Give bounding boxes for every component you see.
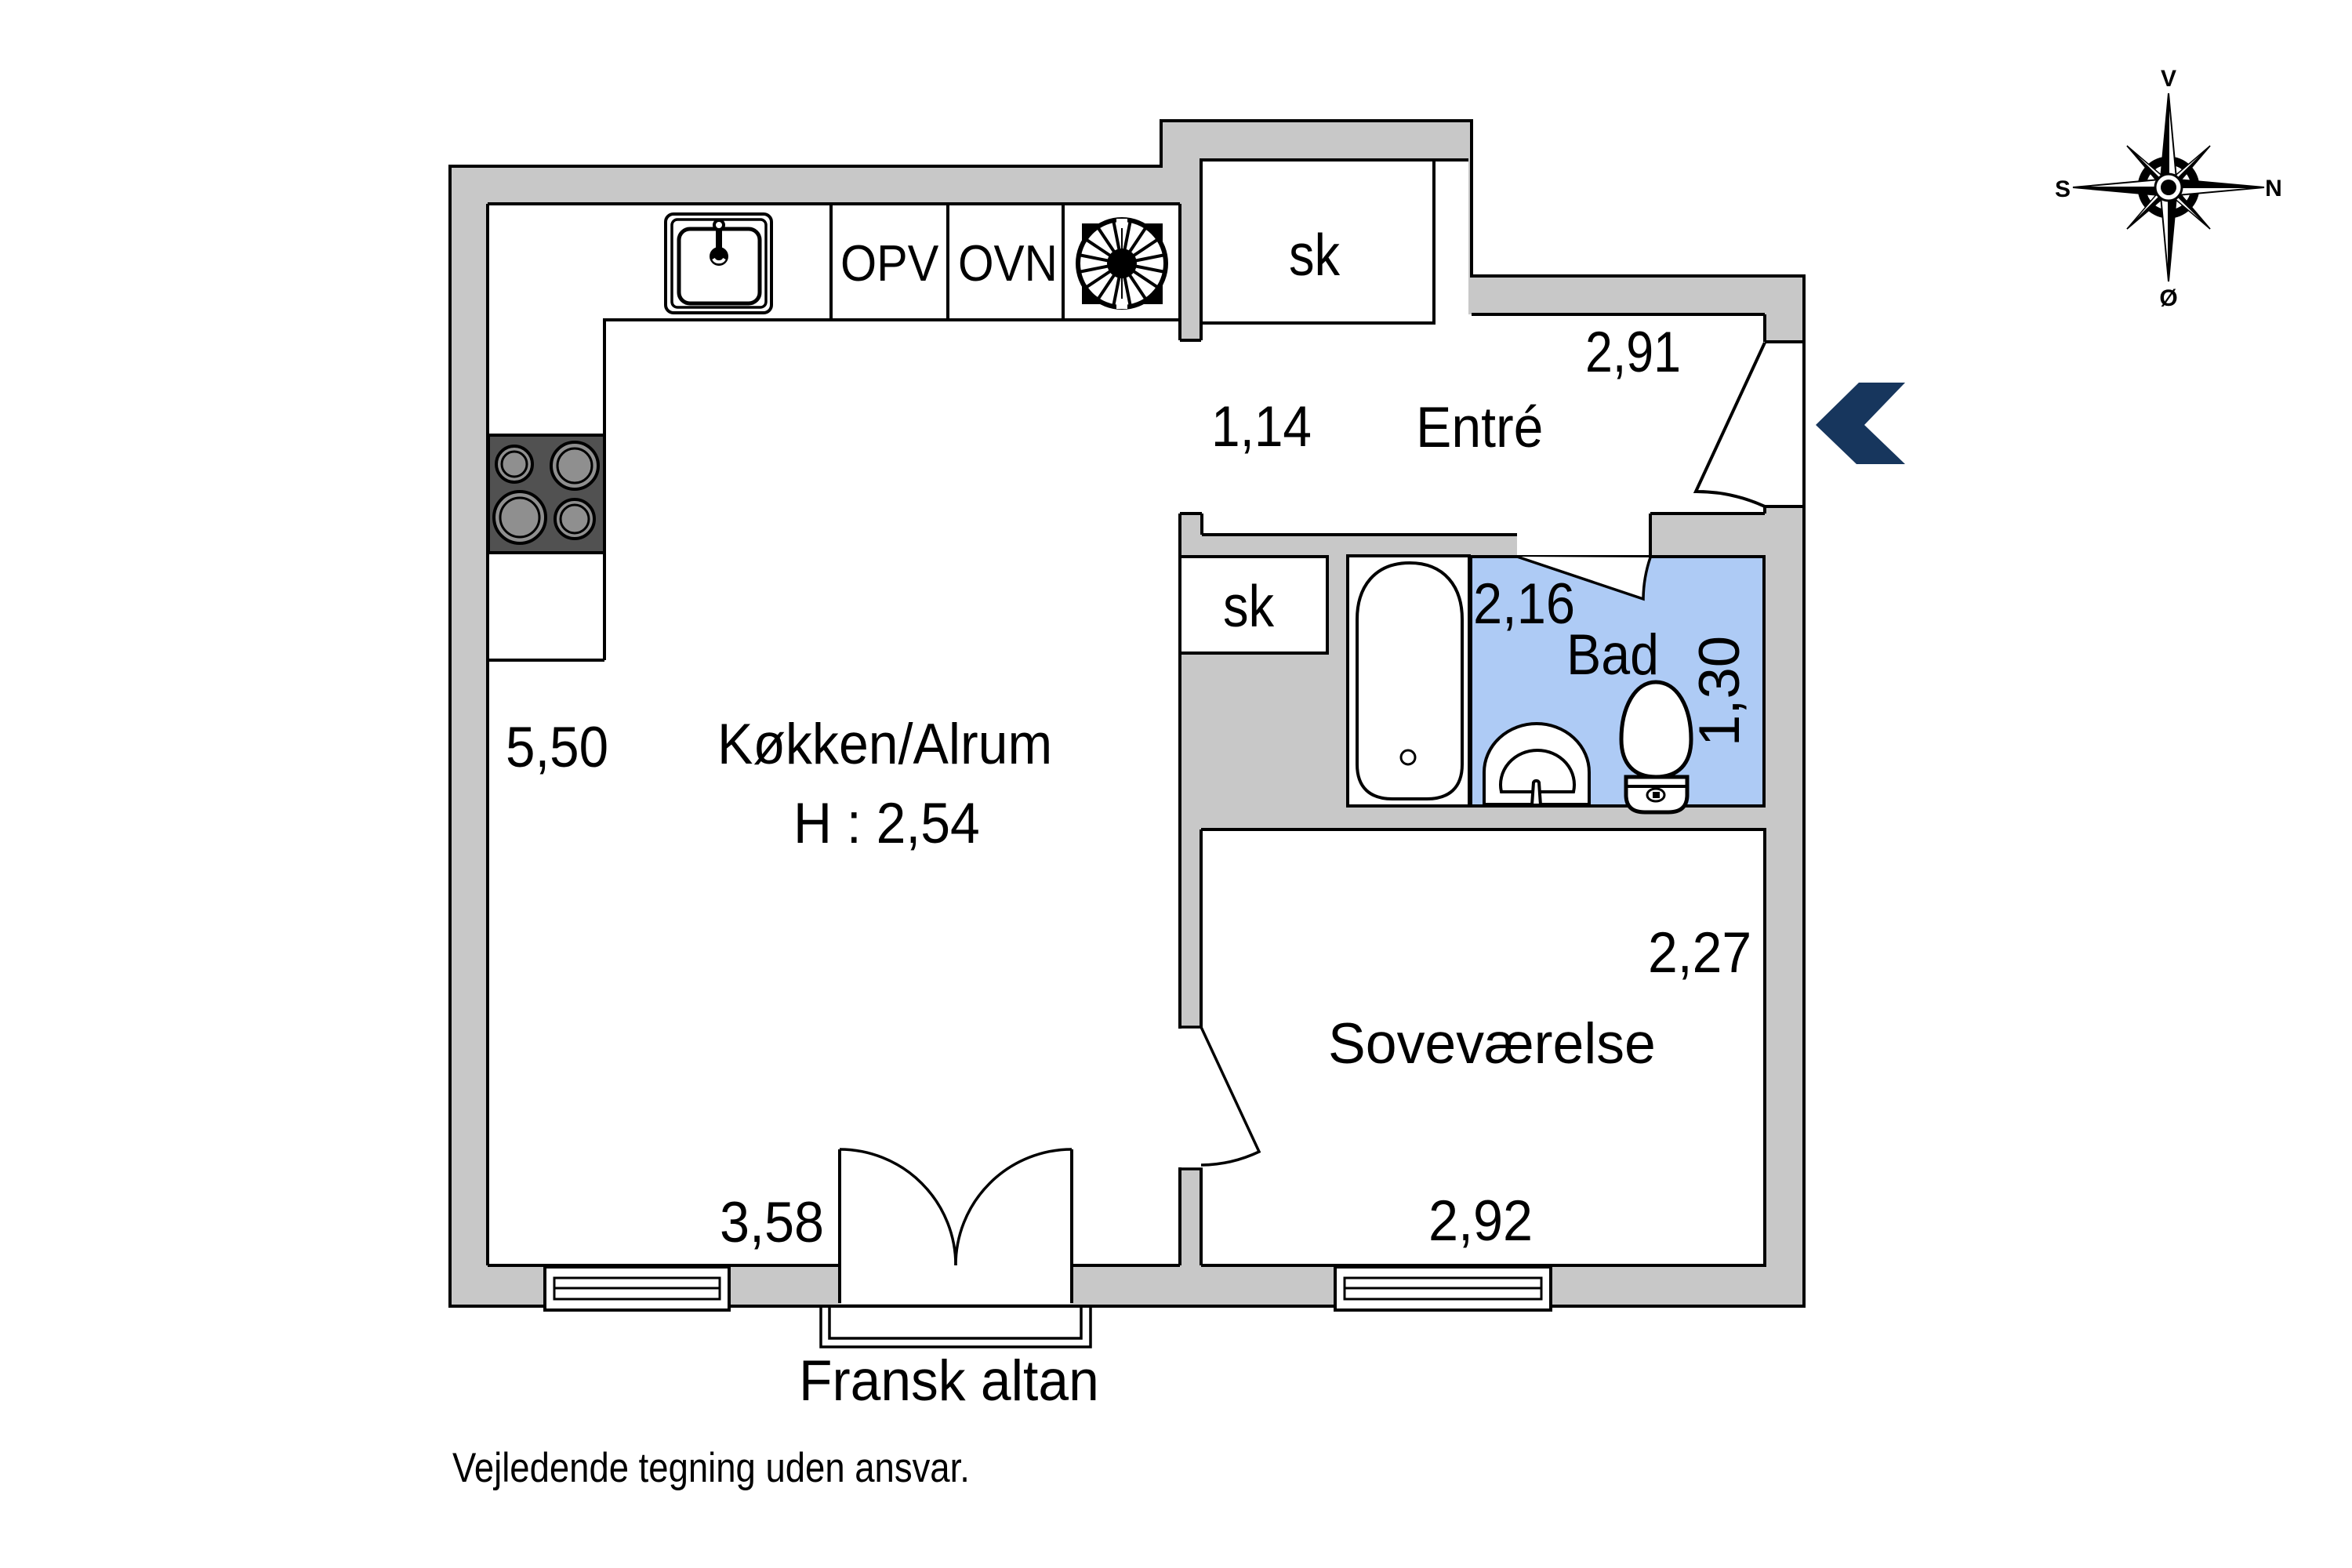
svg-text:2,92: 2,92 bbox=[1428, 1189, 1533, 1253]
svg-text:S: S bbox=[2055, 176, 2071, 202]
svg-text:2,16: 2,16 bbox=[1473, 572, 1575, 635]
svg-text:Vejledende tegning uden ansvar: Vejledende tegning uden ansvar. bbox=[452, 1445, 970, 1491]
svg-text:H : 2,54: H : 2,54 bbox=[793, 791, 980, 855]
svg-text:Fransk altan: Fransk altan bbox=[799, 1348, 1099, 1413]
svg-text:OVN: OVN bbox=[958, 235, 1058, 292]
svg-text:2,27: 2,27 bbox=[1648, 920, 1751, 985]
svg-text:Entré: Entré bbox=[1416, 395, 1543, 459]
svg-text:1,30: 1,30 bbox=[1688, 636, 1751, 746]
svg-text:Ø: Ø bbox=[2159, 285, 2177, 311]
svg-text:1,14: 1,14 bbox=[1211, 394, 1312, 459]
svg-text:N: N bbox=[2265, 176, 2282, 201]
svg-text:sk: sk bbox=[1223, 573, 1275, 639]
svg-text:3,58: 3,58 bbox=[720, 1190, 824, 1254]
svg-text:Bad: Bad bbox=[1566, 622, 1659, 687]
svg-text:Køkken/Alrum: Køkken/Alrum bbox=[717, 712, 1052, 776]
svg-text:5,50: 5,50 bbox=[506, 714, 608, 779]
svg-text:2,91: 2,91 bbox=[1585, 321, 1681, 385]
svg-text:V: V bbox=[2161, 66, 2176, 92]
svg-text:OPV: OPV bbox=[840, 236, 939, 292]
svg-text:sk: sk bbox=[1289, 222, 1341, 288]
svg-text:Soveværelse: Soveværelse bbox=[1328, 1012, 1656, 1076]
